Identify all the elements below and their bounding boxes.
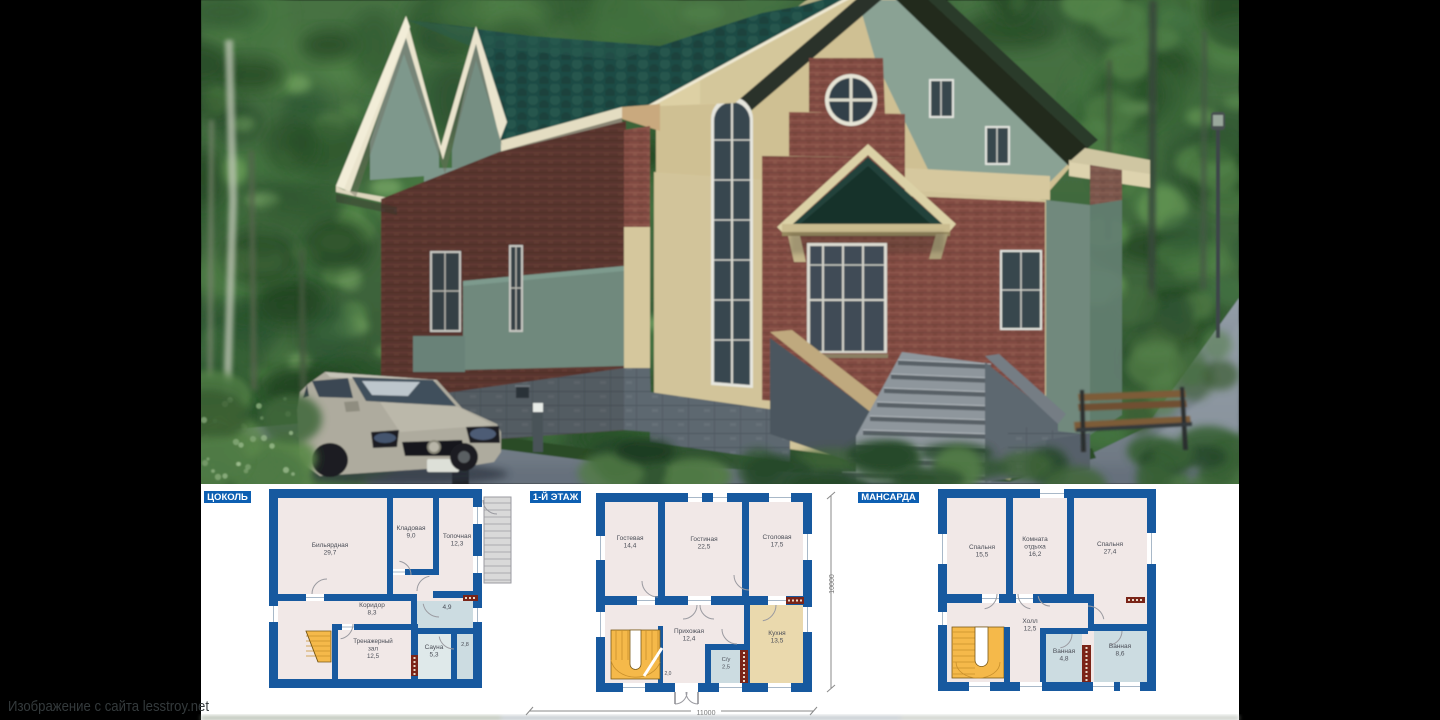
svg-text:16,2: 16,2 <box>1029 551 1042 558</box>
svg-text:Холл: Холл <box>1022 618 1038 625</box>
svg-text:Кухня: Кухня <box>768 630 786 637</box>
svg-text:13,5: 13,5 <box>771 638 784 645</box>
svg-text:8,6: 8,6 <box>1115 651 1124 658</box>
svg-text:4,9: 4,9 <box>442 604 451 611</box>
svg-text:15,5: 15,5 <box>976 552 989 559</box>
svg-text:14,4: 14,4 <box>624 543 637 550</box>
svg-text:Кладовая: Кладовая <box>396 525 426 532</box>
svg-text:Бильярдная: Бильярдная <box>312 542 349 549</box>
svg-text:зал: зал <box>368 646 378 653</box>
svg-text:Коридор: Коридор <box>359 602 385 609</box>
svg-text:Сауна: Сауна <box>425 644 444 651</box>
svg-text:Гостиная: Гостиная <box>690 536 718 543</box>
svg-text:отдыха: отдыха <box>1024 544 1046 551</box>
svg-text:27,4: 27,4 <box>1104 549 1117 556</box>
svg-text:Столовая: Столовая <box>762 534 792 541</box>
svg-text:Тренажерный: Тренажерный <box>353 638 393 645</box>
svg-text:10000: 10000 <box>829 574 836 594</box>
svg-text:17,5: 17,5 <box>771 542 784 549</box>
svg-text:5,3: 5,3 <box>429 652 438 659</box>
svg-text:9,0: 9,0 <box>406 533 415 540</box>
svg-text:2,0: 2,0 <box>665 671 672 677</box>
svg-text:12,3: 12,3 <box>451 541 464 548</box>
svg-text:Спальня: Спальня <box>1097 541 1124 548</box>
svg-text:Топочная: Топочная <box>443 533 472 540</box>
svg-text:1-Й ЭТАЖ: 1-Й ЭТАЖ <box>533 491 579 503</box>
svg-text:29,7: 29,7 <box>324 550 337 557</box>
svg-text:Ванная: Ванная <box>1109 643 1132 650</box>
svg-text:12,4: 12,4 <box>683 636 696 643</box>
svg-text:Ванная: Ванная <box>1053 648 1076 655</box>
svg-text:11000: 11000 <box>697 710 716 717</box>
svg-text:МАНСАРДА: МАНСАРДА <box>861 492 916 503</box>
svg-text:4,8: 4,8 <box>1059 656 1068 663</box>
svg-text:2,5: 2,5 <box>722 665 730 671</box>
svg-text:Спальня: Спальня <box>969 544 996 551</box>
svg-text:ЦОКОЛЬ: ЦОКОЛЬ <box>207 492 248 503</box>
svg-text:2,8: 2,8 <box>461 642 469 648</box>
svg-text:Гостевая: Гостевая <box>617 535 644 542</box>
svg-text:8,3: 8,3 <box>367 610 376 617</box>
svg-text:12,5: 12,5 <box>1024 626 1037 633</box>
svg-text:Изображение с сайта lesstroy.n: Изображение с сайта lesstroy.net <box>8 699 209 715</box>
svg-text:22,5: 22,5 <box>698 544 711 551</box>
svg-text:Комната: Комната <box>1022 536 1048 543</box>
svg-text:12,5: 12,5 <box>367 653 380 660</box>
svg-text:С/у: С/у <box>722 657 731 663</box>
svg-text:Прихожая: Прихожая <box>674 628 705 635</box>
